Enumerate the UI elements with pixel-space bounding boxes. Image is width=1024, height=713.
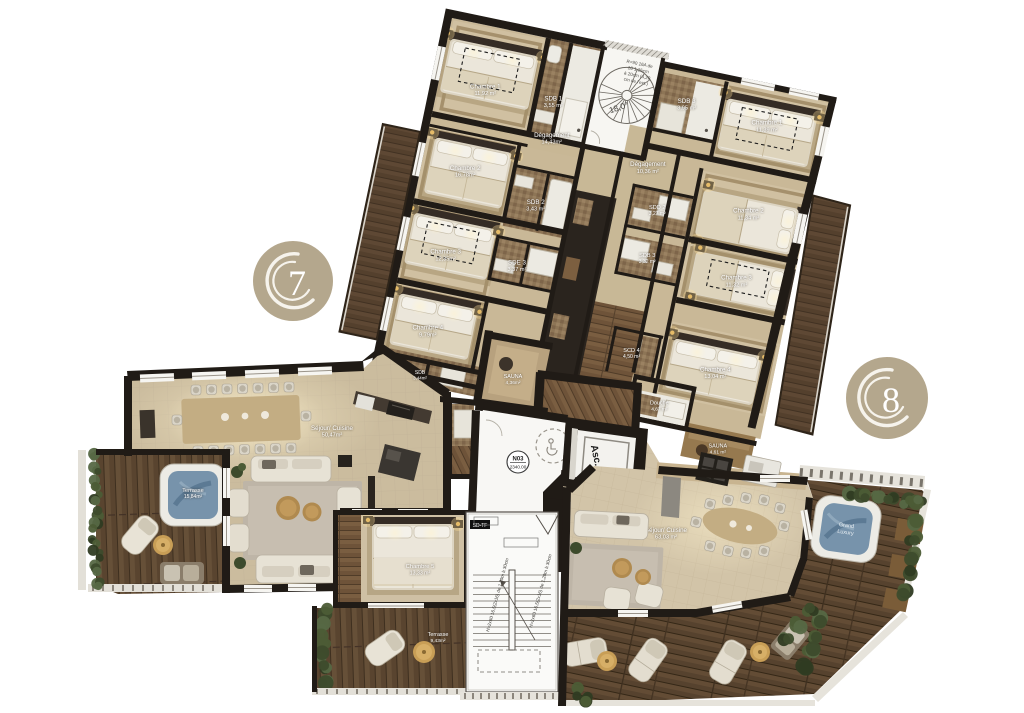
svg-text:3,32 m²: 3,32 m²: [639, 259, 656, 265]
svg-text:3,95 m²: 3,95 m²: [677, 105, 696, 111]
svg-text:10,36 m²: 10,36 m²: [637, 169, 659, 175]
svg-text:3,55 m²: 3,55 m²: [544, 103, 563, 109]
svg-text:9,43m²: 9,43m²: [431, 638, 446, 644]
svg-text:3,44m²: 3,44m²: [413, 376, 427, 381]
svg-text:SD-TF: SD-TF: [473, 523, 488, 529]
svg-text:Chambre 2: Chambre 2: [450, 165, 481, 172]
svg-text:4,36m²: 4,36m²: [506, 380, 521, 386]
svg-text:16,78m²: 16,78m²: [455, 173, 476, 179]
svg-text:12,35m²: 12,35m²: [435, 256, 456, 262]
svg-text:SAUNA: SAUNA: [709, 443, 728, 449]
svg-text:Dégagement: Dégagement: [630, 161, 666, 168]
svg-text:2340.00: 2340.00: [510, 465, 527, 470]
svg-text:SCD 4: SCD 4: [623, 348, 639, 354]
svg-text:SDB 3: SDB 3: [678, 98, 696, 105]
svg-text:Chambre 4: Chambre 4: [700, 366, 731, 373]
svg-text:Chambre 1: Chambre 1: [470, 83, 501, 90]
svg-text:50,47m²: 50,47m²: [322, 433, 343, 439]
svg-text:13,33 m²: 13,33 m²: [410, 570, 431, 576]
svg-text:11,39 m²: 11,39 m²: [756, 127, 778, 133]
svg-text:Chambre 5: Chambre 5: [406, 564, 435, 570]
svg-text:4,50 m²: 4,50 m²: [623, 354, 640, 360]
svg-text:SAUNA: SAUNA: [504, 374, 523, 380]
svg-text:Séjour/ Cuisine: Séjour/ Cuisine: [311, 425, 354, 432]
svg-text:Séjour/ Cuisine: Séjour/ Cuisine: [645, 527, 688, 534]
svg-text:SDB 2: SDB 2: [527, 199, 545, 206]
svg-text:13,04 m²: 13,04 m²: [704, 374, 726, 380]
svg-text:Chambre 1: Chambre 1: [752, 120, 783, 127]
svg-text:14,43m²: 14,43m²: [542, 140, 563, 146]
svg-text:Chambre 3: Chambre 3: [721, 275, 752, 282]
svg-text:3,43 m²: 3,43 m²: [526, 207, 545, 213]
svg-text:Dégagement: Dégagement: [534, 132, 570, 139]
svg-text:Chambre 4: Chambre 4: [412, 325, 443, 332]
svg-text:Terrasse: Terrasse: [428, 632, 449, 638]
svg-text:Chambre 2: Chambre 2: [733, 208, 764, 215]
svg-text:3,27 m²: 3,27 m²: [649, 211, 666, 217]
svg-text:3,37 m²: 3,37 m²: [507, 267, 526, 273]
svg-text:Douche: Douche: [650, 401, 669, 407]
svg-text:N03: N03: [512, 457, 524, 463]
svg-text:SDD 2: SDD 2: [649, 205, 665, 211]
svg-text:SDB 3: SDB 3: [639, 253, 655, 259]
svg-text:4,67 m²: 4,67 m²: [651, 406, 668, 412]
svg-text:Chambre 3: Chambre 3: [430, 249, 461, 256]
svg-text:SDE 3: SDE 3: [508, 259, 526, 266]
svg-text:SDB 1: SDB 1: [544, 95, 562, 102]
svg-text:11,34 m²: 11,34 m²: [738, 215, 760, 221]
svg-text:8: 8: [882, 380, 900, 420]
svg-text:11,92 m²: 11,92 m²: [474, 91, 496, 97]
svg-text:15,84m²: 15,84m²: [184, 494, 203, 500]
svg-text:11,32 m²: 11,32 m²: [726, 282, 748, 288]
svg-text:7: 7: [288, 263, 306, 303]
svg-text:Terrasse: Terrasse: [182, 488, 203, 494]
svg-text:9,79m²: 9,79m²: [419, 332, 437, 338]
svg-text:63,03 m²: 63,03 m²: [655, 535, 677, 541]
